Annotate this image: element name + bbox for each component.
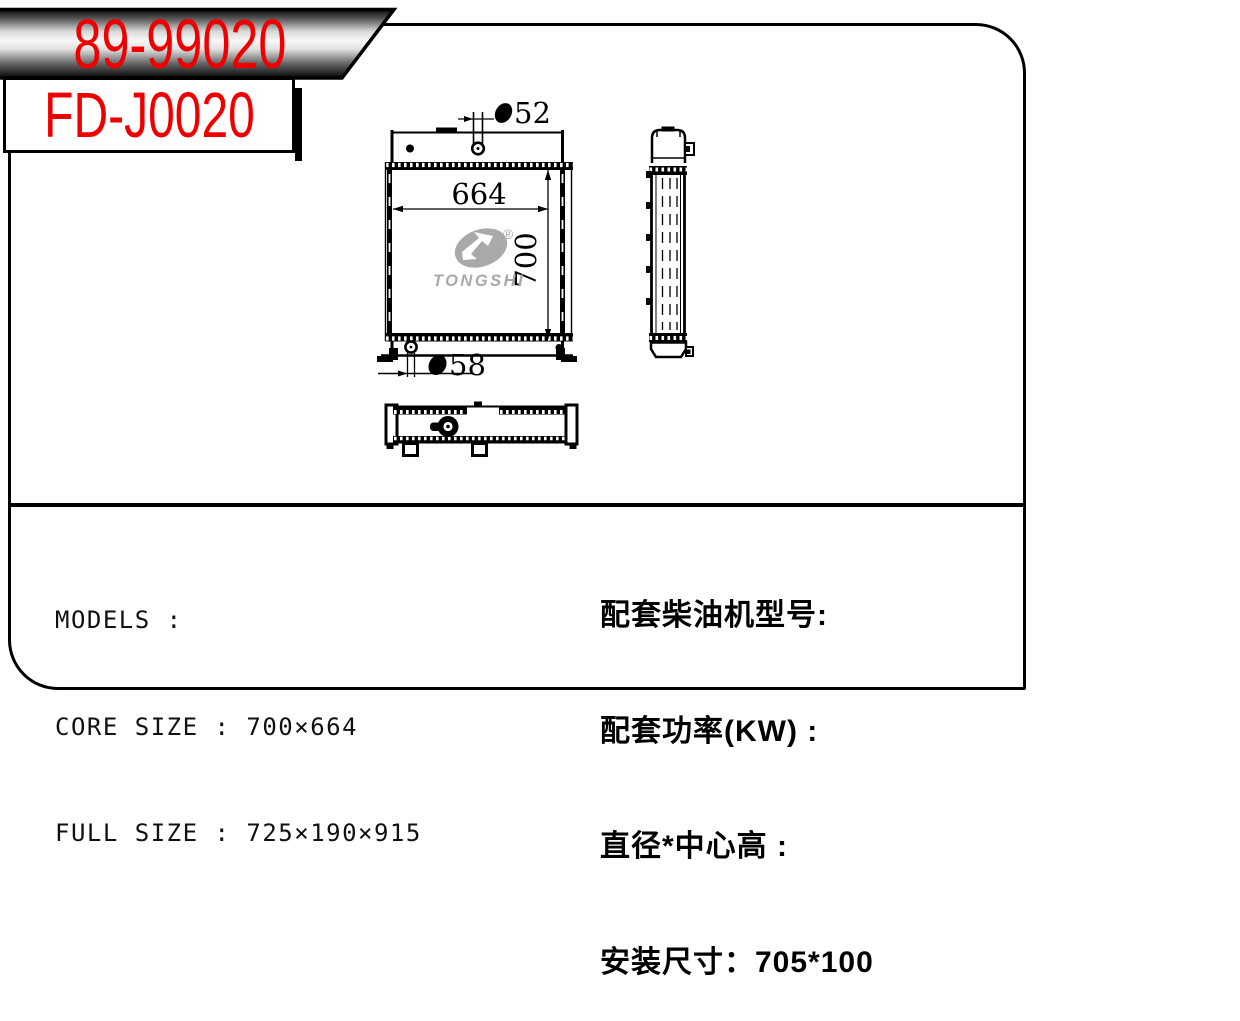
product-code-box-shadow: [295, 88, 302, 161]
product-code-box: FD-J0020: [3, 77, 295, 153]
product-code-text: FD-J0020: [44, 83, 255, 147]
spec-line-power: 配套功率(KW) :: [600, 713, 874, 752]
model-code-text: 89-99020: [73, 9, 286, 79]
spec-line-engine-model: 配套柴油机型号:: [600, 597, 874, 636]
dimension-core-width: 664: [393, 177, 548, 212]
spec-line-models: MODELS :: [55, 603, 422, 639]
radiator-technical-drawing: 664 700 52 58 ® TONGSHI: [360, 85, 726, 475]
spec-line-mounting-size: 安装尺寸：705*100: [600, 944, 874, 983]
phi-symbol: [491, 100, 515, 126]
outlet-diameter-value: 58: [449, 348, 486, 382]
side-view: [646, 127, 694, 358]
inlet-diameter-value: 52: [514, 96, 551, 130]
spec-line-core-size: CORE SIZE : 700×664: [55, 710, 422, 746]
specs-chinese: 配套柴油机型号: 配套功率(KW) : 直径*中心高 : 安装尺寸：705*10…: [600, 520, 874, 1021]
dimension-inlet-diameter: 52: [458, 96, 551, 130]
bottom-view: [386, 402, 577, 456]
section-divider: [10, 503, 1024, 507]
model-code-banner: 89-99020: [0, 0, 400, 86]
catalog-page: { "codes": { "model": "89-99020", "produ…: [0, 0, 1240, 708]
registered-mark: ®: [503, 226, 514, 242]
dimension-core-height: 700: [509, 170, 551, 339]
spec-line-diameter-center-height: 直径*中心高 :: [600, 828, 874, 867]
core-width-value: 664: [451, 177, 506, 211]
logo-brand-text: TONGSHI: [433, 272, 525, 290]
specs-english: MODELS : CORE SIZE : 700×664 FULL SIZE :…: [55, 532, 422, 887]
spec-line-full-size: FULL SIZE : 725×190×915: [55, 816, 422, 852]
